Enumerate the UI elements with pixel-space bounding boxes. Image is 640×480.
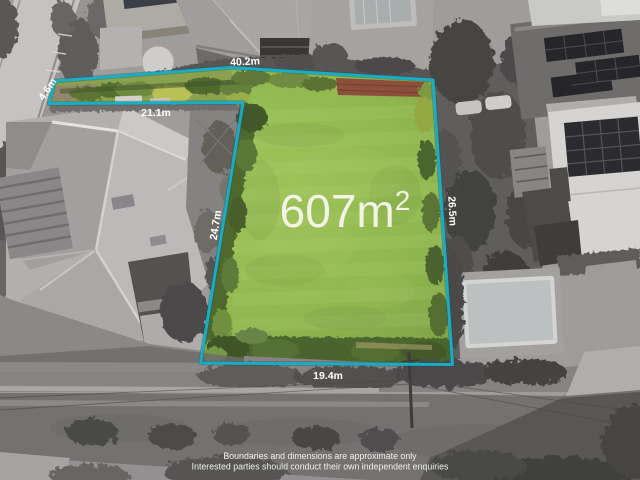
svg-text:26.5m: 26.5m (445, 196, 459, 226)
svg-text:19.4m: 19.4m (313, 370, 343, 382)
svg-text:Interested parties should cond: Interested parties should conduct their … (192, 462, 449, 472)
svg-text:21.1m: 21.1m (141, 107, 171, 119)
svg-text:607m2: 607m2 (280, 185, 411, 237)
svg-text:40.2m: 40.2m (230, 55, 260, 69)
svg-text:Boundaries and dimensions are: Boundaries and dimensions are approximat… (223, 451, 417, 461)
